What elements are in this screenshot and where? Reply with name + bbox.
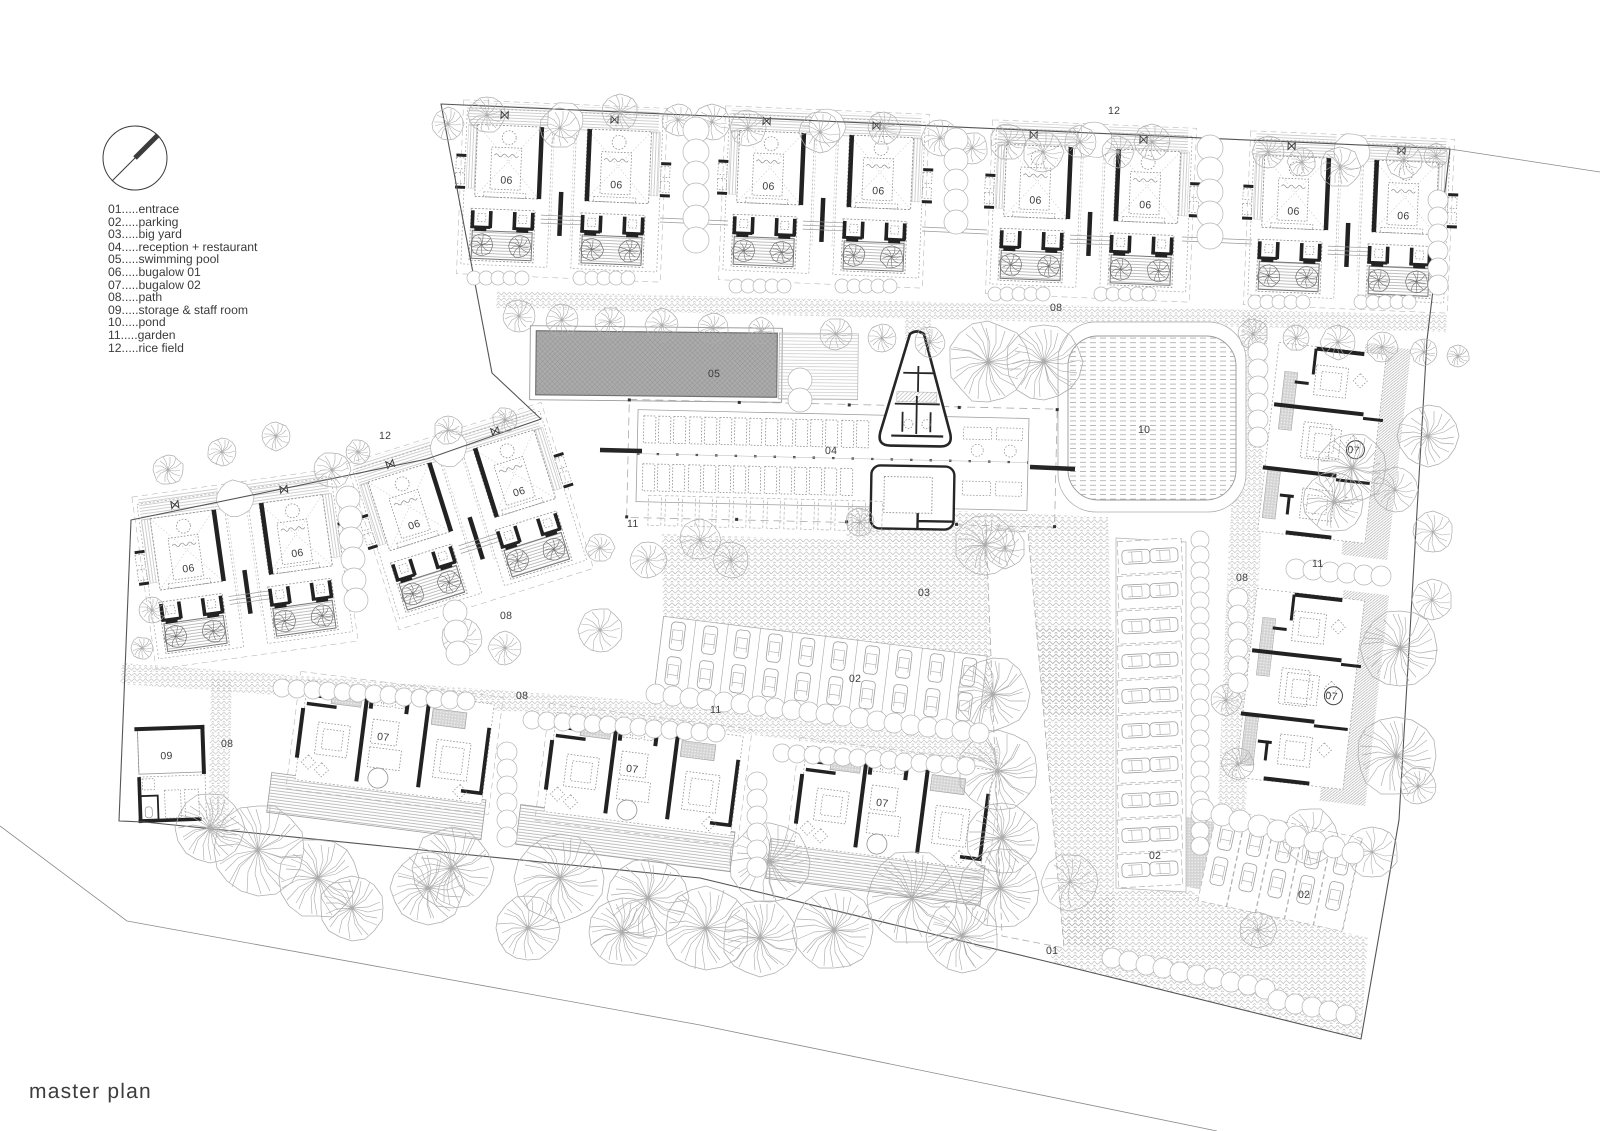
svg-text:06: 06 — [500, 174, 513, 187]
svg-text:06.....bugalow 01: 06.....bugalow 01 — [108, 265, 201, 279]
svg-text:08: 08 — [500, 610, 512, 622]
svg-text:04: 04 — [825, 445, 837, 457]
svg-text:11: 11 — [710, 704, 722, 716]
svg-text:07: 07 — [875, 797, 889, 810]
svg-text:11: 11 — [627, 518, 639, 530]
svg-text:06: 06 — [1139, 199, 1152, 212]
svg-text:master plan: master plan — [29, 1080, 152, 1103]
svg-text:07: 07 — [625, 763, 639, 776]
svg-text:08: 08 — [1236, 572, 1248, 584]
svg-text:01: 01 — [1046, 945, 1058, 957]
svg-text:09: 09 — [160, 750, 173, 762]
svg-text:06: 06 — [182, 562, 196, 576]
svg-text:12.....rice field: 12.....rice field — [108, 341, 184, 355]
svg-text:12: 12 — [1108, 105, 1120, 117]
svg-text:07: 07 — [376, 731, 390, 744]
svg-text:02: 02 — [1149, 850, 1161, 862]
svg-text:02: 02 — [849, 673, 861, 685]
svg-text:06: 06 — [1287, 205, 1300, 218]
svg-text:08.....path: 08.....path — [108, 290, 162, 304]
svg-text:06: 06 — [1029, 194, 1042, 207]
svg-text:11: 11 — [1312, 558, 1324, 570]
svg-text:08: 08 — [221, 738, 233, 750]
svg-text:08: 08 — [1050, 302, 1062, 314]
svg-text:02: 02 — [1298, 889, 1310, 901]
svg-text:03.....big yard: 03.....big yard — [108, 227, 182, 241]
svg-text:08: 08 — [516, 690, 528, 702]
svg-text:06: 06 — [872, 185, 885, 198]
svg-text:10: 10 — [1138, 424, 1150, 436]
svg-text:05: 05 — [708, 368, 720, 380]
svg-text:11.....garden: 11.....garden — [108, 328, 176, 342]
svg-text:06: 06 — [762, 180, 775, 193]
svg-text:06: 06 — [1397, 210, 1410, 223]
svg-text:05.....swimming pool: 05.....swimming pool — [108, 252, 219, 266]
svg-text:03: 03 — [918, 587, 930, 599]
svg-text:06: 06 — [610, 179, 623, 192]
svg-text:07: 07 — [1325, 690, 1339, 703]
svg-text:10.....pond: 10.....pond — [108, 315, 166, 329]
svg-text:01.....entrace: 01.....entrace — [108, 202, 179, 216]
svg-text:06: 06 — [291, 547, 305, 561]
svg-text:12: 12 — [379, 430, 391, 442]
